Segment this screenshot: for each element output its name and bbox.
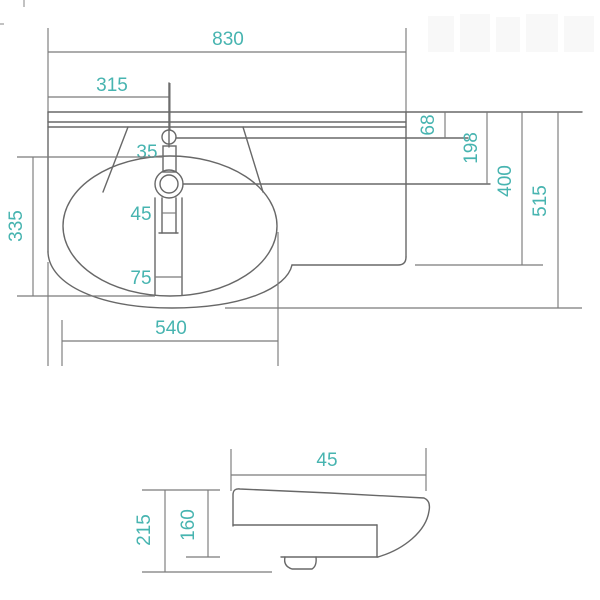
dim-label-830: 830	[212, 29, 244, 50]
sv-dim-label-215: 215	[134, 514, 155, 546]
dim-label-45: 45	[130, 204, 151, 225]
watermark-block	[526, 14, 558, 52]
watermark-block	[428, 16, 454, 52]
dim-label-35: 35	[136, 142, 157, 163]
upper-slot	[163, 146, 176, 172]
top-view: 830 315 35 45 75	[6, 28, 582, 366]
dim-label-515: 515	[530, 185, 551, 217]
counter-right-front-edge	[292, 257, 406, 265]
basin-profile-outline	[233, 489, 429, 557]
mixer-hole-outer	[155, 170, 183, 198]
washbasin-dimension-drawing: 830 315 35 45 75	[0, 0, 600, 600]
watermark-block	[460, 14, 490, 52]
sv-dim-label-45: 45	[316, 450, 337, 471]
dim-label-68: 68	[418, 114, 439, 135]
watermark-block	[496, 17, 520, 52]
dim-label-198: 198	[461, 132, 482, 164]
bowl-ellipse	[63, 156, 277, 296]
dim-label-400: 400	[495, 165, 516, 197]
sv-dim-label-160: 160	[178, 509, 199, 541]
side-view: 45 215 160	[134, 448, 429, 572]
faint-watermark	[428, 14, 594, 52]
dim-label-315: 315	[96, 75, 128, 96]
dim-label-335: 335	[6, 210, 27, 242]
counter-bulge-front-curve	[48, 252, 292, 308]
pedestal-slant-left	[103, 127, 128, 192]
mixer-hole-inner	[160, 175, 178, 193]
technical-drawing-page: 830 315 35 45 75	[0, 0, 600, 600]
watermark-block	[564, 16, 594, 52]
dim-label-540: 540	[155, 318, 187, 339]
dim-label-75: 75	[130, 268, 151, 289]
drain-nub	[285, 557, 317, 569]
